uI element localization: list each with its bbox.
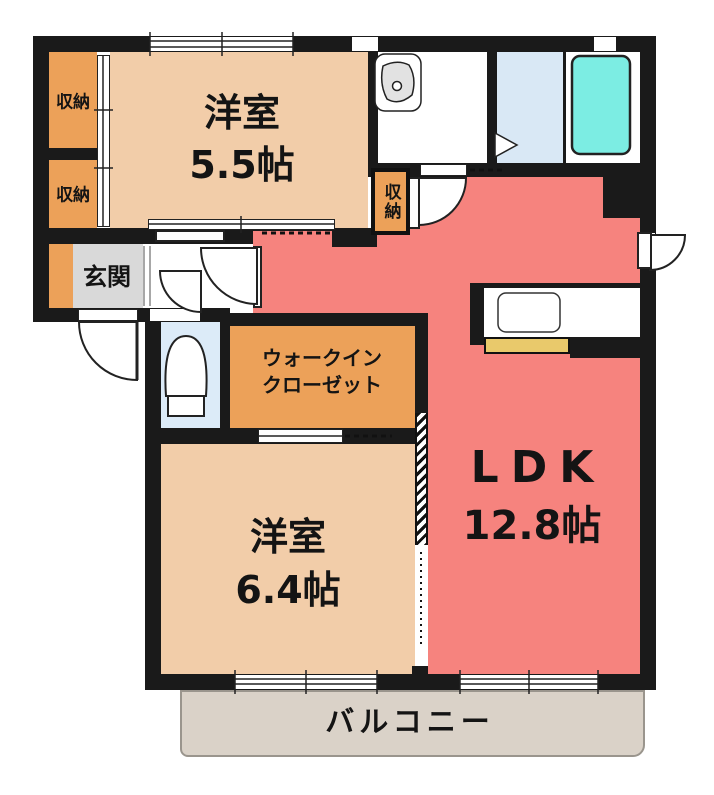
room-bedroom-5-5-floor <box>110 52 368 230</box>
wic-label-line2: クローゼット <box>262 375 382 395</box>
bedroom1-closet-slider <box>148 219 335 230</box>
room-changing-floor <box>497 52 563 163</box>
wall-bath-divider <box>563 52 566 163</box>
wall-storage-divider <box>49 148 97 160</box>
bedroom-5-5-size: 5.5帖 <box>189 146 294 184</box>
storage-mid-label: 収納 <box>56 188 90 205</box>
room-bedroom-6-4-floor <box>161 444 415 674</box>
window-ldk-bottom <box>460 675 598 689</box>
toilet-door-swing <box>160 271 201 312</box>
bedroom1-closet-track <box>97 55 110 227</box>
storage-top-label: 収納 <box>56 95 90 112</box>
window-bedroom1-top <box>150 37 293 51</box>
bedroom-5-5-name: 洋室 <box>204 94 280 132</box>
toilet-door-opening <box>150 309 200 321</box>
room-toilet-floor <box>157 322 220 428</box>
storage-hall-label: 収納 <box>379 183 404 221</box>
wall-bath-corner <box>603 163 640 218</box>
bedroom-6-4-size: 6.4帖 <box>235 571 340 609</box>
floorplan: 洋室 5.5帖 洋室 6.4帖 LDK 12.8帖 ウォークイン クローゼット … <box>0 0 714 795</box>
kitchen-counter <box>484 288 640 337</box>
hall-ldk-door-leaf <box>253 246 262 308</box>
entrance-door-opening <box>78 309 138 321</box>
ldk-size: 12.8帖 <box>463 506 602 546</box>
wic-label-line1: ウォークイン <box>262 348 382 368</box>
wall-bedroom2-right-stub <box>412 666 428 690</box>
window-bedroom2-bottom <box>235 675 377 689</box>
wall-top <box>33 36 656 52</box>
entrance-door-swing <box>79 322 137 380</box>
entrance-label: 玄関 <box>83 265 131 289</box>
window-bath-vent <box>594 37 616 51</box>
room-bathroom-floor <box>566 52 640 163</box>
wall-wic-top <box>220 313 428 326</box>
service-door-opening <box>641 233 655 268</box>
bedroom1-door-leaf <box>155 230 225 242</box>
room-ldk-floor <box>428 313 640 674</box>
wall-washroom-right <box>487 36 497 163</box>
wall-bedroom2-left <box>145 308 161 690</box>
wall-right <box>640 36 656 690</box>
wall-toilet-right <box>220 308 230 444</box>
wall-wic-right <box>415 313 428 413</box>
balcony-label: バルコニー <box>325 708 494 737</box>
bedroom-6-4-name: 洋室 <box>250 518 326 556</box>
ldk-name: LDK <box>471 446 606 490</box>
window-washroom-vent <box>352 37 378 51</box>
entrance-shoe-cabinet <box>49 244 73 308</box>
hall-door-swing <box>201 248 257 304</box>
washroom-sliding-door <box>420 164 467 176</box>
wall-left <box>33 36 49 322</box>
room-washroom-floor <box>378 52 487 163</box>
wall-kitchen-stub <box>470 283 484 345</box>
accordion-partition <box>415 413 428 545</box>
wall-kitchen-block <box>570 337 645 358</box>
wic-sliding-door <box>258 429 343 443</box>
kitchen-counter-front <box>484 337 570 354</box>
wall-bedroom1-right <box>368 36 378 172</box>
